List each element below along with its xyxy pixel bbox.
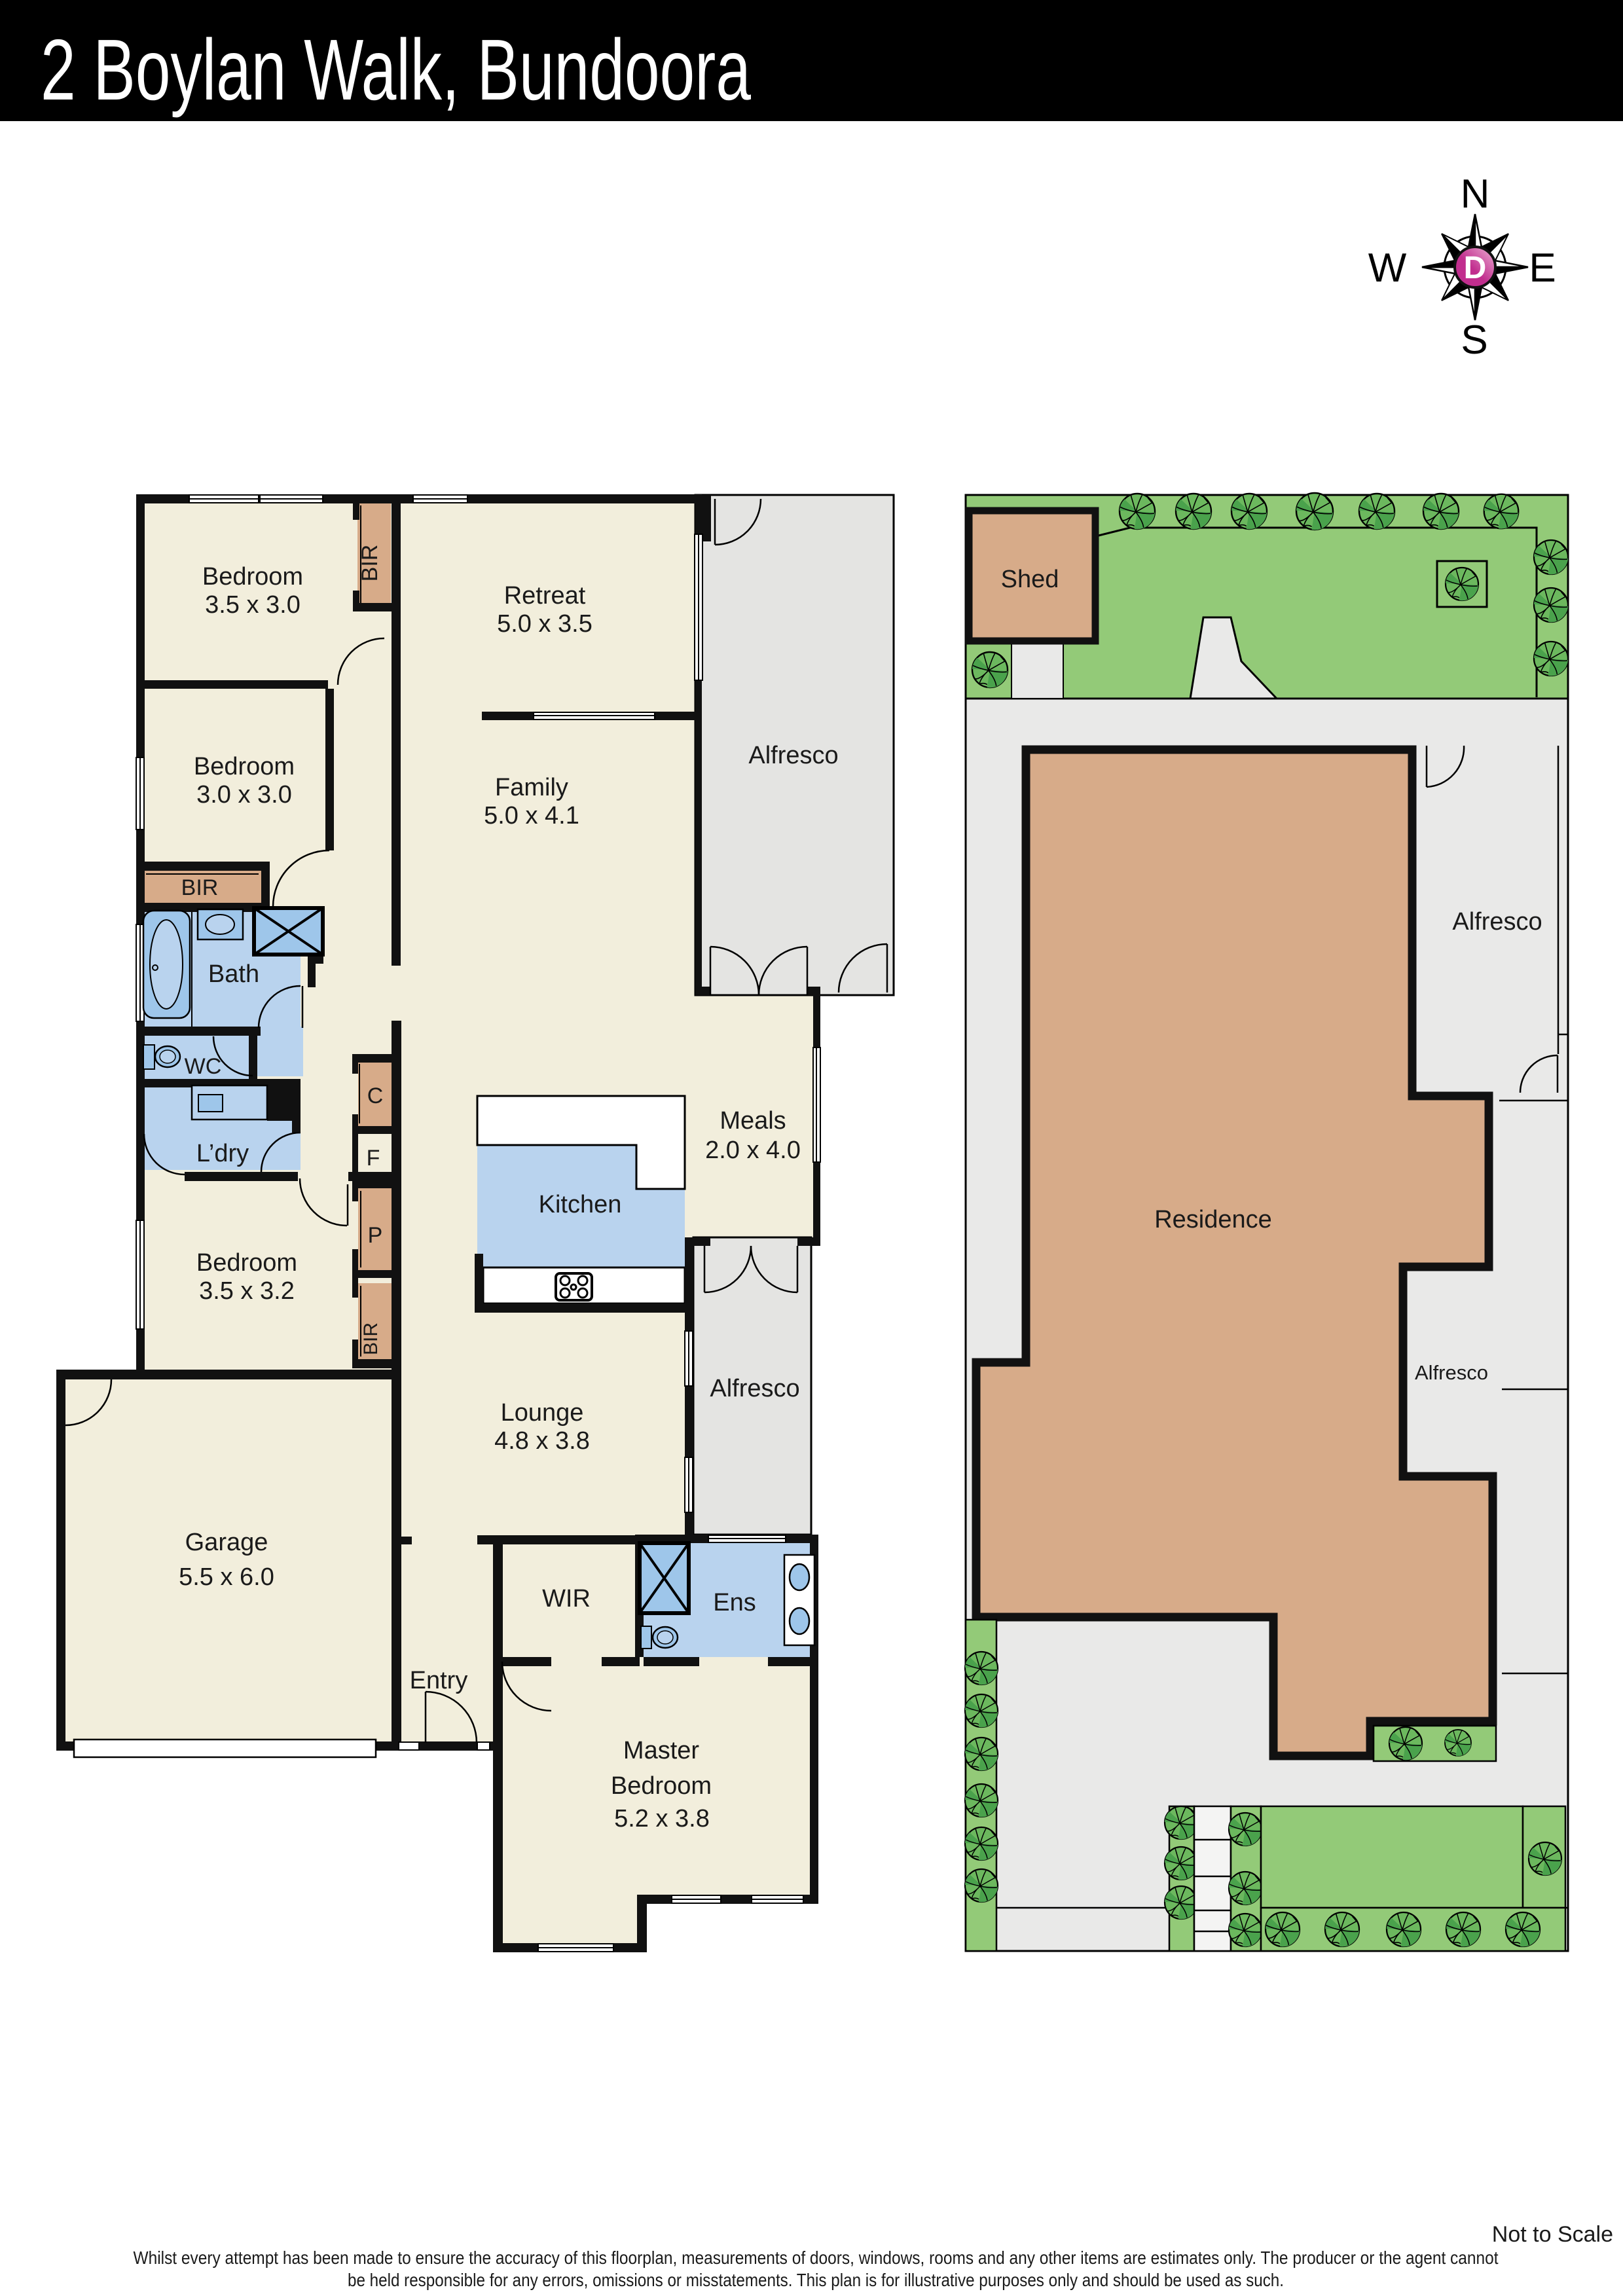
svg-text:S: S — [1461, 318, 1487, 363]
svg-text:3.5 x 3.2: 3.5 x 3.2 — [199, 1277, 295, 1305]
svg-text:Garage: Garage — [185, 1529, 268, 1556]
svg-text:Alfresco: Alfresco — [1415, 1361, 1488, 1384]
svg-text:Shed: Shed — [1001, 566, 1059, 593]
svg-text:Bedroom: Bedroom — [611, 1772, 712, 1800]
svg-text:E: E — [1529, 246, 1556, 291]
svg-text:5.2 x 3.8: 5.2 x 3.8 — [614, 1805, 710, 1832]
svg-text:Residence: Residence — [1154, 1206, 1272, 1233]
svg-text:Bedroom: Bedroom — [202, 563, 303, 591]
svg-text:5.0 x 4.1: 5.0 x 4.1 — [484, 802, 579, 829]
svg-text:WIR: WIR — [542, 1585, 591, 1613]
svg-text:Alfresco: Alfresco — [748, 742, 838, 769]
svg-text:Ens: Ens — [713, 1589, 756, 1616]
svg-text:N: N — [1461, 172, 1490, 217]
svg-text:Kitchen: Kitchen — [539, 1191, 622, 1218]
svg-text:Alfresco: Alfresco — [1452, 908, 1542, 936]
svg-text:C: C — [367, 1084, 384, 1108]
svg-text:3.0 x 3.0: 3.0 x 3.0 — [196, 781, 292, 809]
svg-text:F: F — [367, 1146, 380, 1171]
svg-text:BIR: BIR — [181, 875, 219, 900]
svg-text:Whilst every attempt has been: Whilst every attempt has been made to en… — [134, 2248, 1499, 2268]
svg-text:D: D — [1464, 251, 1487, 285]
svg-text:4.8 x 3.8: 4.8 x 3.8 — [494, 1427, 590, 1455]
svg-text:Meals: Meals — [720, 1107, 786, 1135]
svg-text:Lounge: Lounge — [501, 1399, 584, 1427]
svg-text:3.5 x 3.0: 3.5 x 3.0 — [205, 591, 301, 619]
svg-text:Bedroom: Bedroom — [196, 1249, 297, 1277]
svg-text:P: P — [368, 1223, 383, 1248]
svg-text:Family: Family — [495, 774, 568, 801]
svg-text:L’dry: L’dry — [196, 1140, 249, 1167]
svg-text:Master: Master — [623, 1737, 699, 1764]
svg-text:WC: WC — [185, 1054, 222, 1079]
svg-text:2.0 x 4.0: 2.0 x 4.0 — [705, 1137, 801, 1164]
svg-text:Bedroom: Bedroom — [194, 753, 295, 780]
svg-text:W: W — [1368, 246, 1407, 291]
svg-text:5.5 x 6.0: 5.5 x 6.0 — [179, 1563, 274, 1591]
svg-text:Alfresco: Alfresco — [710, 1375, 799, 1402]
svg-text:2 Boylan Walk, Bundoora: 2 Boylan Walk, Bundoora — [41, 22, 751, 118]
svg-text:5.0 x 3.5: 5.0 x 3.5 — [497, 610, 593, 638]
svg-text:Bath: Bath — [208, 960, 259, 988]
svg-text:be held responsible for any er: be held responsible for any errors, omis… — [348, 2270, 1284, 2290]
svg-text:Retreat: Retreat — [504, 582, 586, 610]
svg-text:Not to Scale: Not to Scale — [1492, 2222, 1613, 2247]
svg-text:BIR: BIR — [357, 545, 382, 582]
svg-text:BIR: BIR — [360, 1322, 382, 1355]
svg-text:Entry: Entry — [410, 1667, 468, 1694]
